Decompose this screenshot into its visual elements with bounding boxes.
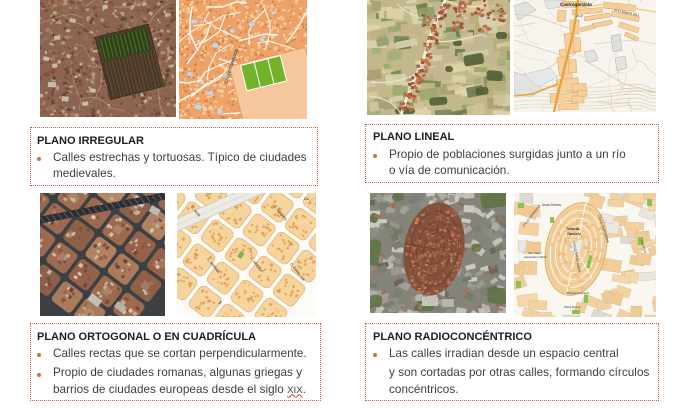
svg-text:13: 13 <box>204 99 208 103</box>
svg-text:6: 6 <box>218 42 220 46</box>
svg-text:Castrogonzalo: Castrogonzalo <box>560 2 592 7</box>
svg-text:11: 11 <box>202 21 206 25</box>
svg-text:9: 9 <box>185 26 187 30</box>
svg-text:5: 5 <box>255 52 257 56</box>
svg-text:13: 13 <box>206 110 210 114</box>
svg-text:5: 5 <box>202 91 204 95</box>
svg-text:Gasteiz: Gasteiz <box>567 231 581 236</box>
svg-text:8: 8 <box>227 13 229 17</box>
svg-text:Plaza Nueva: Plaza Nueva <box>564 305 581 309</box>
svg-text:8: 8 <box>196 55 198 59</box>
svg-text:Wikiguardo Eleiza: Wikiguardo Eleiza <box>566 291 590 295</box>
svg-text:Apostolaren Eliza: Apostolaren Eliza <box>524 255 547 259</box>
svg-text:8: 8 <box>186 54 188 58</box>
svg-text:23: 23 <box>262 25 266 29</box>
svg-text:Anda Dorrea: Anda Dorrea <box>542 203 561 207</box>
svg-text:ZA-P: ZA-P <box>576 14 583 18</box>
svg-text:Ca: Ca <box>304 197 309 201</box>
svg-text:7: 7 <box>183 100 185 104</box>
